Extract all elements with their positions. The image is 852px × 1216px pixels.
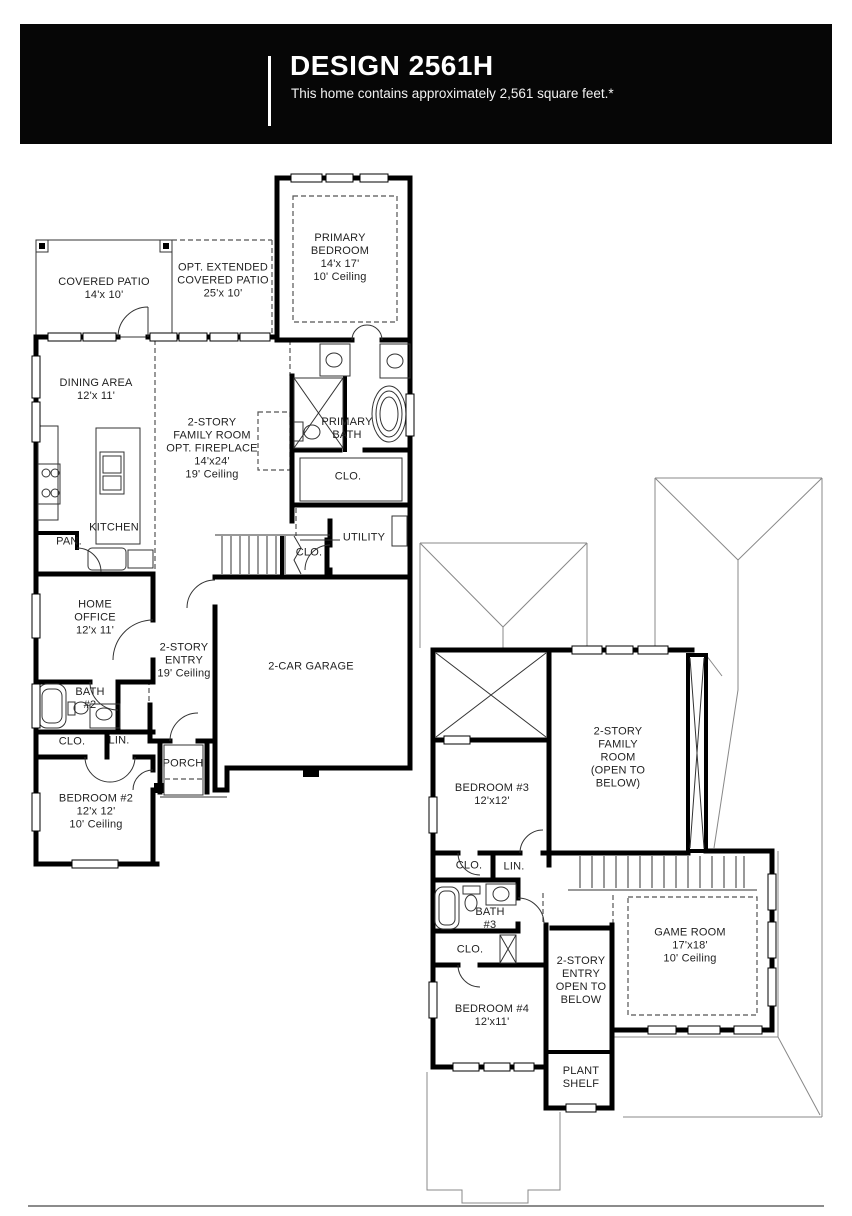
second-floor-walls — [433, 650, 772, 1108]
room-label-covered-patio: COVERED PATIO 14'x 10' — [58, 276, 149, 302]
room-label-garage: 2-CAR GARAGE — [268, 661, 354, 674]
room-label-utility: UTILITY — [343, 532, 385, 545]
room-label-closet-bedroom4: CLO. — [457, 944, 483, 957]
room-label-family-room-open-below: 2-STORY FAMILY ROOM (OPEN TO BELOW) — [591, 726, 645, 791]
linen-shelves-icon — [500, 935, 516, 963]
room-label-family-room: 2-STORY FAMILY ROOM OPT. FIREPLACE 14'x2… — [166, 417, 257, 482]
room-label-opt-extended-covered-patio: OPT. EXTENDED COVERED PATIO 25'x 10' — [177, 262, 268, 301]
room-label-closet-bedroom3: CLO. — [456, 860, 482, 873]
room-label-two-story-entry: 2-STORY ENTRY 19' Ceiling — [157, 642, 210, 681]
floorplan-sheet: COVERED PATIO 14'x 10'OPT. EXTENDED COVE… — [0, 0, 852, 1216]
fireplace-chase-icon — [688, 655, 706, 851]
room-label-game-room: GAME ROOM 17'x18' 10' Ceiling — [654, 927, 725, 966]
room-label-stair-closet: CLO. — [296, 547, 322, 560]
room-label-primary-closet: CLO. — [335, 471, 361, 484]
room-label-bedroom-4: BEDROOM #4 12'x11' — [455, 1003, 529, 1029]
footer-divider — [28, 1205, 824, 1207]
room-label-bath-3: BATH #3 — [475, 906, 504, 932]
toilet-icon — [294, 422, 320, 441]
room-label-pantry: PAN. — [56, 536, 82, 549]
room-label-two-story-entry-open-below: 2-STORY ENTRY OPEN TO BELOW — [556, 955, 607, 1007]
page-title: DESIGN 2561H — [290, 50, 494, 82]
room-label-home-office: HOME OFFICE 12'x 11' — [74, 599, 116, 638]
room-label-bedroom-3: BEDROOM #3 12'x12' — [455, 782, 529, 808]
room-label-plant-shelf: PLANT SHELF — [563, 1065, 599, 1091]
stairs-second-floor — [568, 856, 757, 890]
room-label-linen-2: LIN. — [504, 861, 525, 874]
sink-icon — [320, 344, 350, 376]
room-label-linen: LIN. — [109, 735, 130, 748]
tub-icon — [372, 386, 406, 442]
room-label-closet-bedroom2: CLO. — [59, 736, 85, 749]
sink-icon — [380, 344, 410, 378]
water-heater-icon — [392, 516, 407, 546]
open-below-x — [436, 653, 546, 737]
room-label-kitchen: KITCHEN — [89, 522, 139, 535]
kitchen-counter — [38, 426, 58, 520]
room-label-dining-area: DINING AREA 12'x 11' — [59, 377, 132, 403]
bath-cabinet — [463, 886, 480, 894]
kitchen-bench — [88, 548, 126, 570]
floor-plan-drawing — [0, 0, 852, 1216]
page-subtitle: This home contains approximately 2,561 s… — [291, 86, 614, 101]
header-bar: DESIGN 2561H This home contains approxim… — [20, 24, 832, 144]
room-label-porch: PORCH — [163, 758, 204, 771]
second-floor — [429, 646, 776, 1112]
room-label-primary-bedroom: PRIMARY BEDROOM 14'x 17' 10' Ceiling — [311, 232, 369, 284]
sink-icon — [486, 884, 516, 905]
kitchen-cabinet — [128, 550, 153, 568]
room-label-bedroom-2: BEDROOM #2 12'x 12' 10' Ceiling — [59, 793, 133, 832]
header-divider-line — [268, 56, 271, 126]
room-label-primary-bath: PRIMARY BATH — [321, 416, 372, 442]
cooktop-icon — [38, 464, 60, 504]
room-label-bath-2: BATH #2 — [75, 686, 104, 712]
garage-door-pier — [303, 768, 319, 777]
roof-outline — [420, 478, 822, 1203]
